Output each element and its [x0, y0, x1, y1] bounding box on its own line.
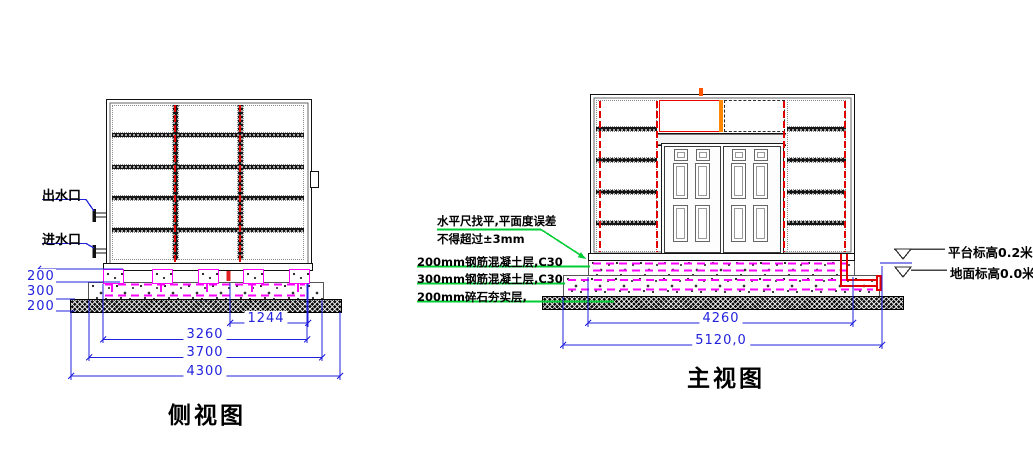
layer-label-300-concrete: 300mm钢筋混凝土层,C30: [417, 271, 563, 287]
rebar-lines-side: [105, 284, 305, 296]
technical-drawing-canvas: 出水口 进水口 200 300 200 1244 3260 3700 4300 …: [0, 0, 1033, 475]
rebar-lines-front: [568, 264, 873, 290]
layer-dim-300: 300: [26, 284, 56, 299]
red-accent-marks: [227, 88, 724, 281]
outlet-label: 出水口: [42, 185, 81, 204]
layer-dim-200-top: 200: [26, 269, 56, 284]
leveling-note-line1: 水平尺找平,平面度误差: [437, 213, 556, 229]
dim-4260: 4260: [699, 311, 742, 326]
platform-elevation-label: 平台标高0.2米: [948, 242, 1033, 261]
side-view-title: 侧视图: [168, 396, 246, 430]
ground-elevation-label: 地面标高0.0米: [950, 263, 1033, 282]
inlet-label: 进水口: [42, 229, 81, 248]
red-axis-lines-side: [175, 105, 240, 262]
front-view-title: 主视图: [687, 359, 765, 393]
layer-label-200-gravel: 200mm碎石夯实层,: [417, 289, 527, 305]
layer-label-200-concrete: 200mm钢筋混凝土层,C30: [417, 254, 563, 270]
pipe-stubs: [93, 209, 108, 258]
elevation-markers: [880, 249, 947, 277]
dim-4300: 4300: [183, 364, 226, 379]
dim-5120: 5120,0: [692, 333, 750, 348]
dim-1244: 1244: [244, 311, 287, 326]
layer-dim-200-bottom: 200: [26, 299, 56, 314]
leveling-note-line2: 不得超过±3mm: [437, 231, 525, 247]
dim-3700: 3700: [183, 345, 226, 360]
drain-pipe: [841, 254, 881, 290]
dim-3260: 3260: [183, 327, 226, 342]
